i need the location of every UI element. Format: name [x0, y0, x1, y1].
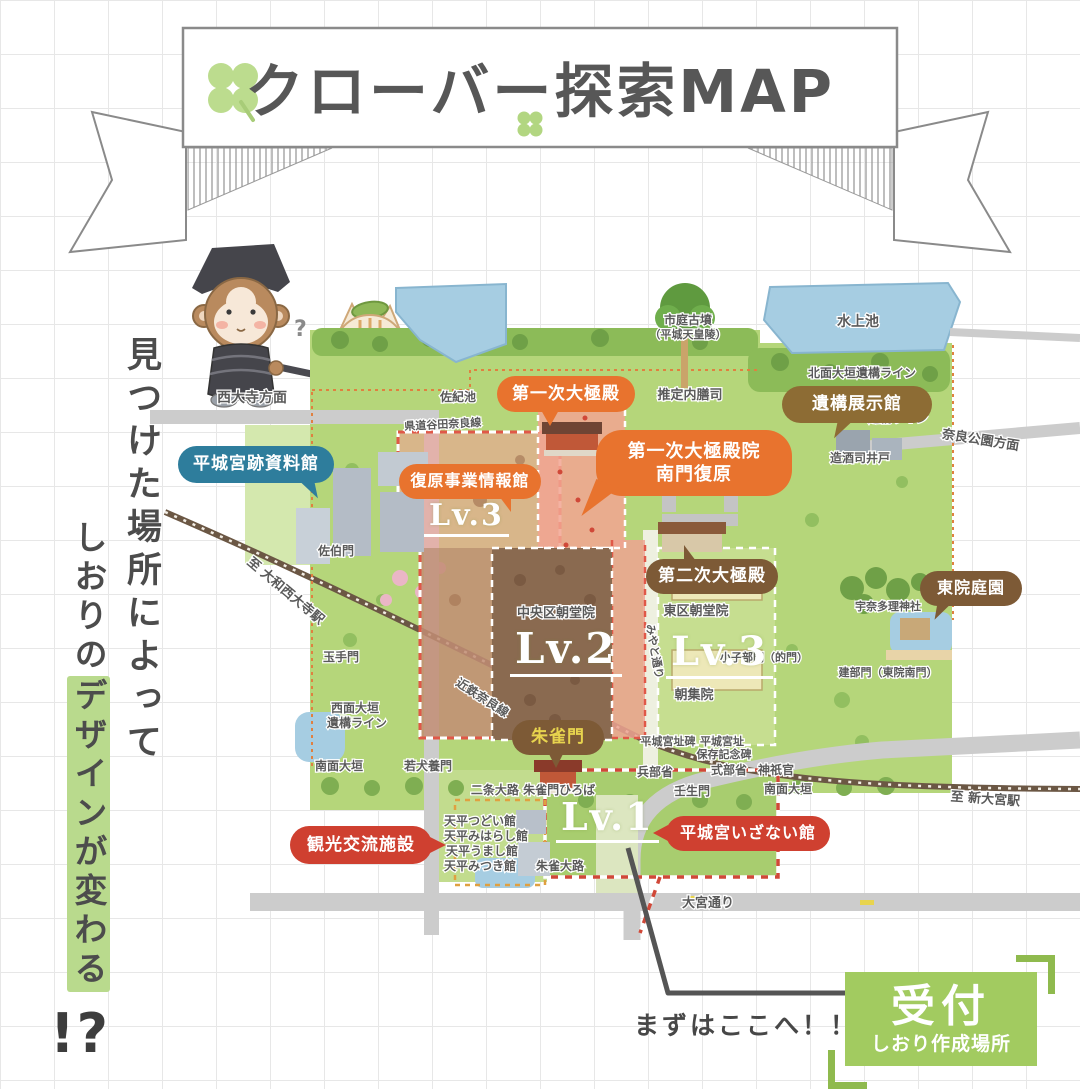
label-shin-omiya: 至 新大宮駅 — [950, 789, 1021, 810]
reception-note: まずはここへ！！ — [634, 1006, 858, 1042]
tagline-line2-prefix: しおりの — [69, 520, 108, 676]
question-mark: ? — [294, 317, 307, 342]
label-shiseki2: 平城宮址 — [700, 734, 744, 748]
callout-label: 朱雀門 — [531, 726, 585, 748]
callout-label: 第二次大極殿 — [658, 565, 766, 587]
callout-label: 第一次大極殿院 — [628, 440, 761, 463]
callout-label: 第一次大極殿 — [512, 383, 620, 405]
label-miharashi: 天平みはらし館 — [444, 828, 528, 843]
label-umashi: 天平うまし館 — [446, 843, 518, 858]
label-saeki-mon: 佐伯門 — [317, 543, 354, 558]
label-higashiku-chodoin: 東区朝堂院 — [663, 603, 728, 619]
label-mitsuki: 天平みつき館 — [444, 858, 516, 873]
label-wakainukai-mon: 若犬養門 — [403, 758, 452, 773]
callout-dainiji-daigokuden: 第二次大極殿 — [646, 559, 778, 594]
callout-label: 遺構展示館 — [812, 393, 902, 415]
level-label-center: Lv.2 — [510, 624, 622, 677]
callout-label: 復原事業情報館 — [410, 471, 529, 492]
callout-label: 観光交流施設 — [307, 834, 415, 856]
label-chuoku-chodoin: 中央区朝堂院 — [517, 605, 595, 621]
label-mizugami-ike: 水上池 — [837, 313, 879, 330]
callout-fukugen-joho: 復原事業情報館 — [399, 464, 541, 499]
label-hyobusho: 兵部省 — [637, 764, 673, 779]
tagline-line1: 見つけた場所によって — [116, 336, 167, 766]
reception-subtitle: しおり作成場所 — [871, 1034, 1011, 1055]
callout-label: 平城宮いざない館 — [680, 823, 816, 844]
tagline-highlight: デザインが変わる — [67, 676, 110, 992]
callout-izanai-kan: 平城宮いざない館 — [666, 816, 830, 851]
callout-toin-teien: 東院庭園 — [920, 571, 1022, 606]
label-suitei-naizenshi: 推定内膳司 — [657, 387, 722, 403]
corner-bracket-top-right — [1016, 955, 1055, 994]
label-choshuin: 朝集院 — [674, 687, 713, 703]
label-tsudoi: 天平つどい館 — [444, 813, 516, 828]
label-tamate-mon: 玉手門 — [323, 649, 359, 664]
label-ichiniwa-kofun: 市庭古墳 — [664, 312, 712, 327]
callout-tail — [684, 545, 696, 561]
callout-label: 南門復原 — [656, 463, 732, 486]
label-nanmen-west: 南面大垣 — [315, 758, 363, 773]
label-saidaiji-homen: 西大寺方面 — [217, 389, 287, 406]
page-title: クローバー探索MAP — [183, 34, 897, 138]
level-label-south: Lv.1 — [556, 794, 659, 843]
level-label-nw: Lv.3 — [424, 498, 509, 537]
label-unatari-jinja: 宇奈多理神社 — [855, 599, 921, 613]
corner-bracket-bottom-left — [828, 1050, 867, 1089]
clover-map-poster: ? — [0, 0, 1080, 1080]
reception-box: 受付 しおり作成場所 — [845, 972, 1037, 1066]
callout-label: 平城宮跡資料館 — [193, 453, 319, 475]
label-hokumen-line: 北面大垣遺構ライン — [808, 365, 916, 380]
label-seimen-1: 西面大垣 — [331, 700, 379, 715]
label-mibu-mon: 壬生門 — [674, 783, 710, 798]
label-miki-ido: 造酒司井戸 — [830, 450, 890, 465]
callout-daiichiji-daigokuden: 第一次大極殿 — [497, 376, 635, 412]
label-omiya-dori: 大宮通り — [682, 895, 734, 911]
callout-label: 東院庭園 — [937, 578, 1005, 599]
callout-suzakumon: 朱雀門 — [512, 720, 604, 755]
label-suzaku-oji: 朱雀大路 — [536, 858, 585, 873]
label-sakiike: 佐紀池 — [439, 389, 476, 404]
callout-tail — [300, 479, 318, 501]
callout-shiryokan: 平城宮跡資料館 — [178, 446, 334, 483]
callout-nanmon-fukugen: 第一次大極殿院 南門復原 — [596, 430, 792, 496]
callout-ikou-tenjikan: 遺構展示館 — [782, 386, 932, 423]
tagline-punctuation: !? — [50, 1002, 110, 1065]
callout-kanko-koryu: 観光交流施設 — [290, 826, 432, 864]
callout-tail — [548, 752, 564, 768]
reception-title: 受付 — [891, 983, 991, 1031]
label-shisekihi: 平城宮址碑 — [641, 734, 696, 748]
callout-tail — [430, 837, 446, 853]
label-nanmen-east: 南面大垣 — [764, 781, 812, 796]
label-shikibusho: 式部省 — [711, 762, 747, 777]
label-seimen-2: 遺構ライン — [326, 715, 387, 730]
label-tatebe-mon: 建部門（東院南門） — [839, 665, 938, 679]
daiichiji-daigokuden-building — [542, 422, 602, 456]
tagline-line2: しおりのデザインが変わる — [64, 520, 112, 992]
level-label-east: Lv.3 — [666, 628, 773, 679]
label-hozon-kinenhi: 保存記念碑 — [696, 747, 752, 761]
label-heijo-tennoryo: （平城天皇陵） — [650, 327, 727, 341]
label-jingikan: 神祇官 — [758, 762, 794, 777]
callout-tail — [541, 410, 559, 426]
